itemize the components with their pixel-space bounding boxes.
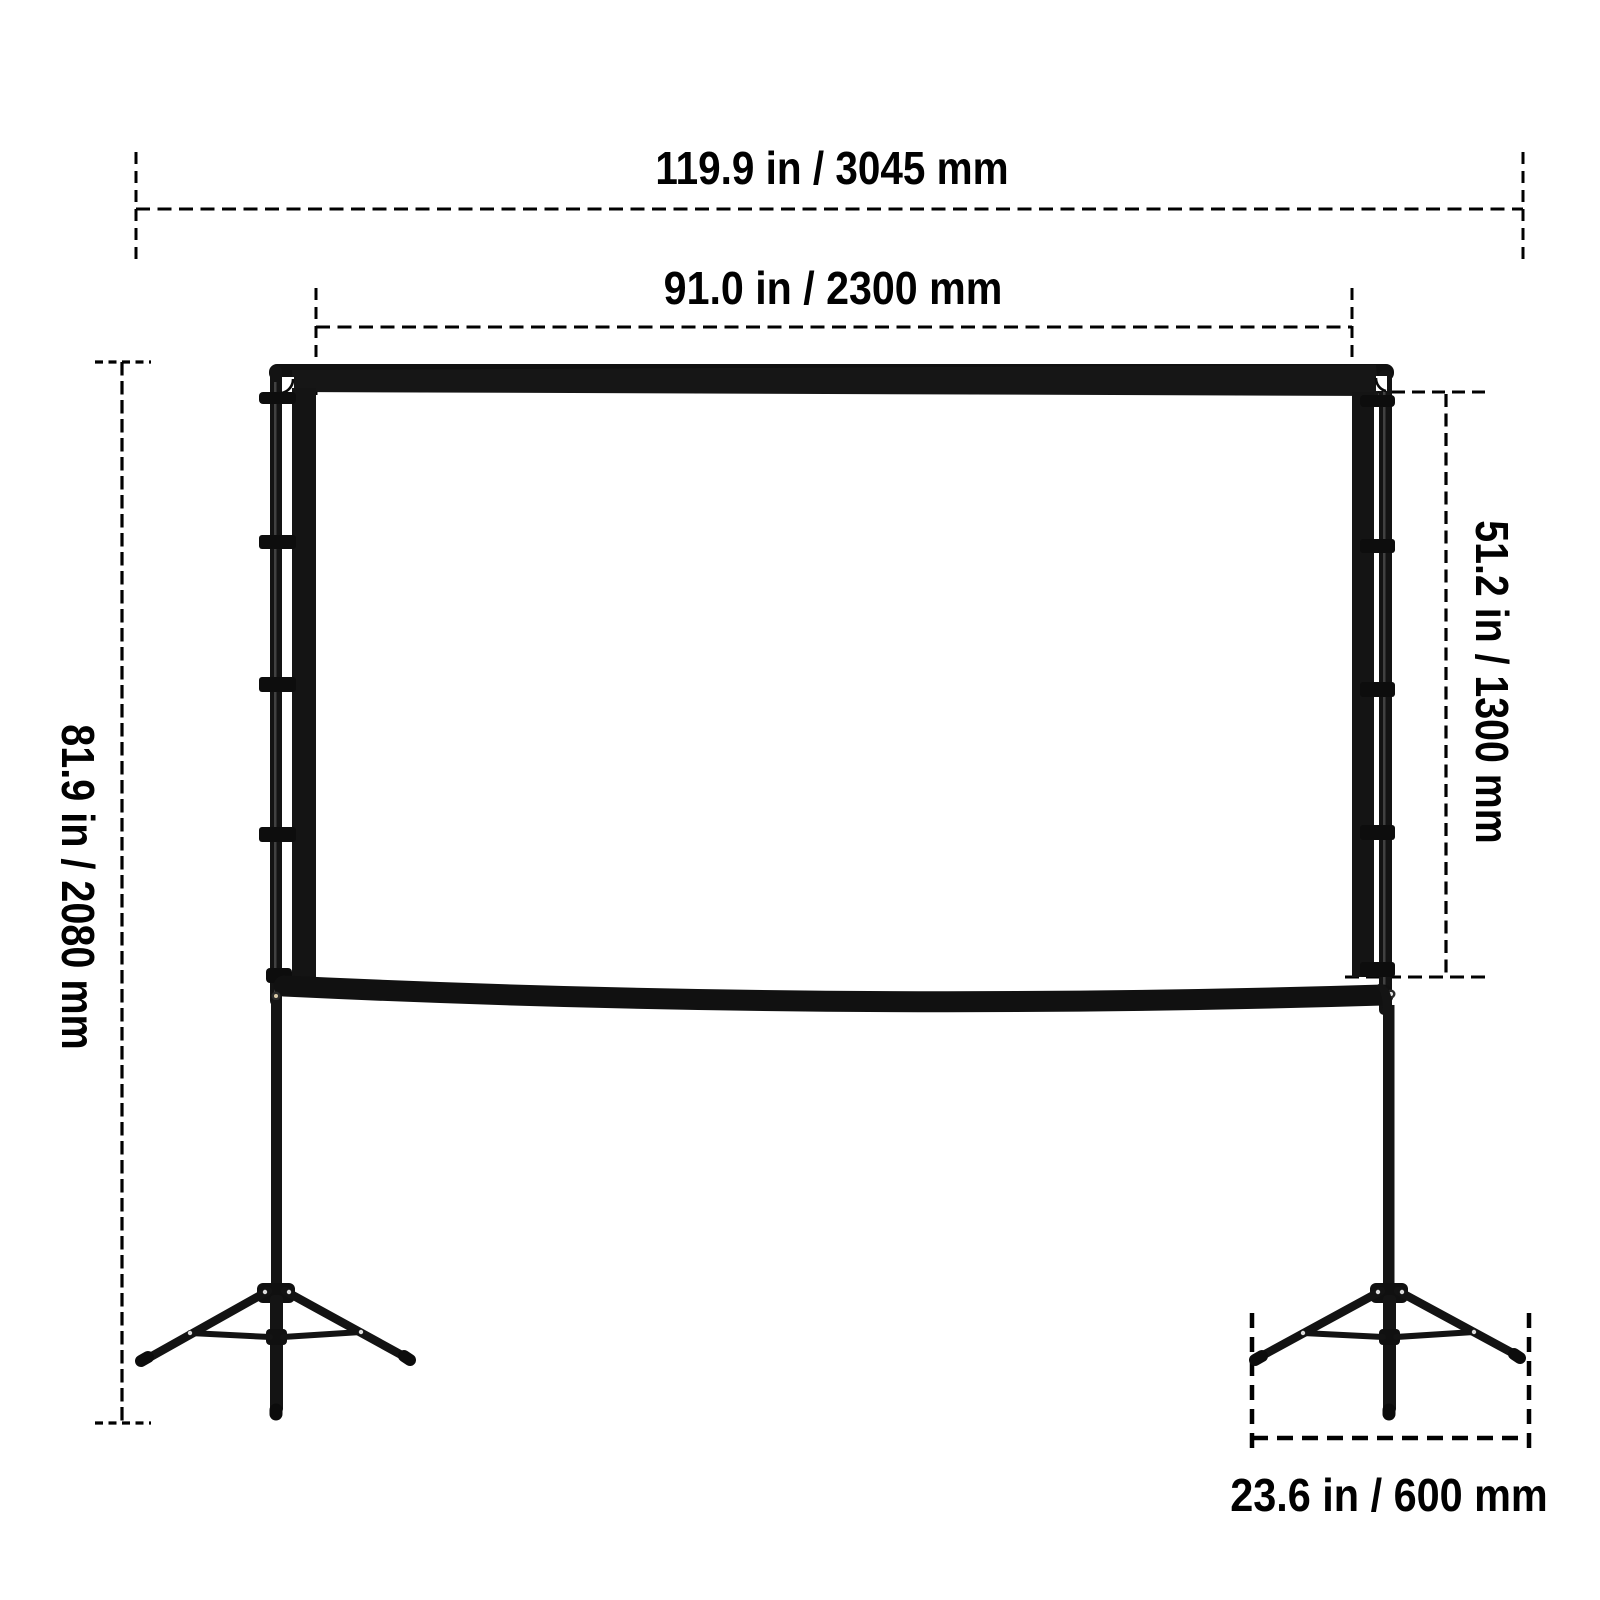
svg-text:91.0 in / 2300 mm: 91.0 in / 2300 mm	[664, 263, 1003, 315]
svg-text:23.6 in / 600 mm: 23.6 in / 600 mm	[1230, 1470, 1548, 1522]
svg-text:119.9 in / 3045 mm: 119.9 in / 3045 mm	[655, 144, 1008, 195]
svg-text:51.2 in / 1300 mm: 51.2 in / 1300 mm	[1465, 520, 1517, 843]
svg-text:81.9 in / 2080 mm: 81.9 in / 2080 mm	[51, 724, 102, 1049]
